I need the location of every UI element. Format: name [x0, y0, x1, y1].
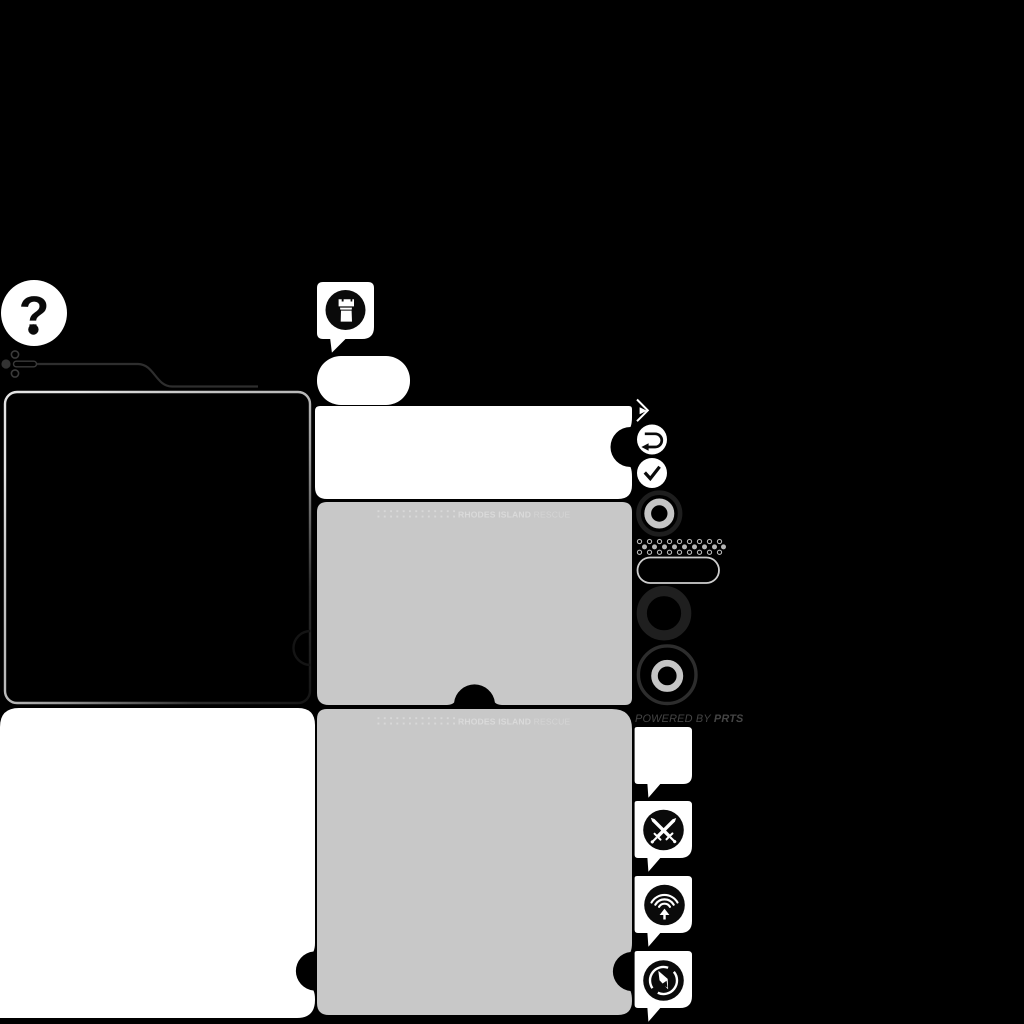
- svg-text:RHODES ISLAND RESCUE: RHODES ISLAND RESCUE: [458, 717, 570, 727]
- svg-text:POWERED BY PRTS: POWERED BY PRTS: [635, 713, 744, 725]
- svg-text:RHODES ISLAND RESCUE: RHODES ISLAND RESCUE: [458, 510, 570, 520]
